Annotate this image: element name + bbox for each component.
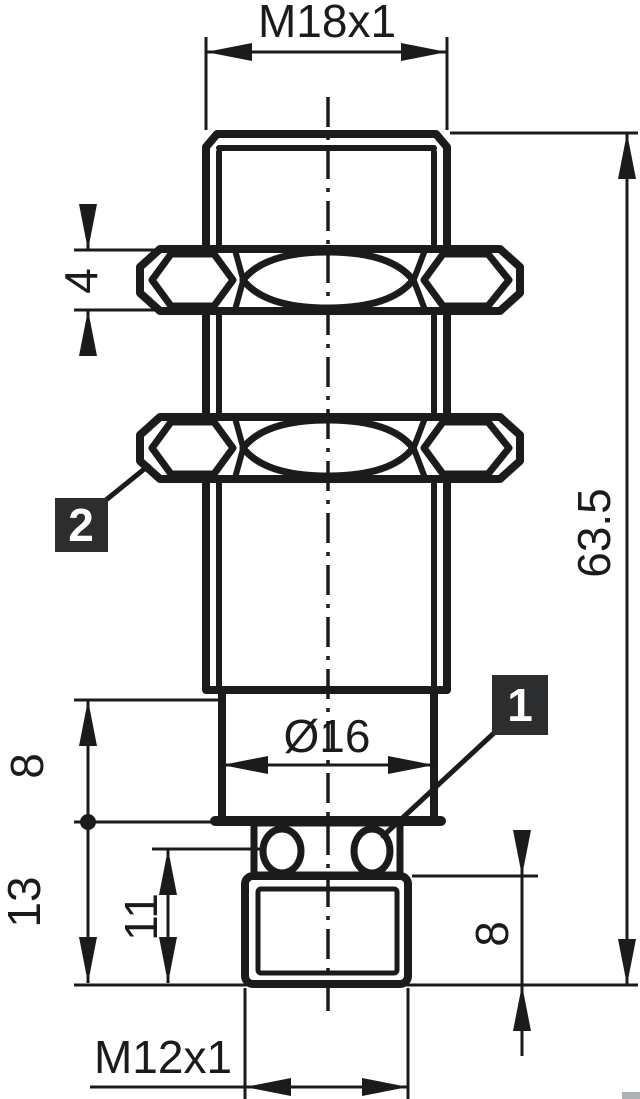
nut-right-facet (424, 254, 509, 306)
arrowhead-down (79, 204, 97, 250)
hex-nut-upper (140, 249, 520, 311)
nut-left-facet (152, 254, 233, 306)
arrowhead-right (362, 1078, 408, 1096)
arrowhead-right (401, 43, 447, 61)
dimension-label-overall: 63.5 (568, 488, 620, 578)
arrowhead-left (245, 1078, 291, 1096)
dimension-label-groove: 11 (115, 893, 167, 941)
callout-1-label: 1 (507, 679, 533, 731)
arrowhead-up (618, 133, 636, 179)
callout-2: 2 (55, 466, 148, 552)
dimension-label-m12: M12x1 (94, 1031, 232, 1083)
hex-nut-lower (140, 417, 520, 479)
arrowhead-left (206, 43, 252, 61)
dimension-label-lower: 13 (0, 876, 50, 927)
dimension-connector-length: 8 (412, 830, 538, 1056)
arrowhead-up (79, 310, 97, 356)
callout-2-label: 2 (68, 499, 94, 551)
nut-right-facet (424, 422, 509, 474)
arrowhead-down (159, 937, 177, 983)
arrowhead-up (159, 849, 177, 895)
arrowhead-down (513, 830, 531, 876)
dimension-lower-length: 13 (0, 822, 97, 983)
arrowhead-down (618, 939, 636, 985)
dimension-label-connector: 8 (466, 921, 518, 947)
dimension-connector-thread: M12x1 (90, 988, 408, 1099)
corner-artifact (622, 1092, 640, 1099)
dimension-label-diameter: Ø16 (284, 710, 371, 762)
sensor-dimension-drawing: M18x1 63.5 4 8 13 11 Ø16 (0, 0, 640, 1099)
nut-left-facet (152, 422, 233, 474)
arrowhead-up (79, 700, 97, 746)
dimension-label-nut: 4 (55, 268, 107, 294)
arrowhead-down (79, 937, 97, 983)
oring-left (263, 829, 301, 873)
dimension-groove-length: 11 (115, 849, 262, 983)
callout-2-leader (106, 466, 148, 500)
dimension-shoulder-height: 8 (1, 700, 250, 830)
dimension-label-m18: M18x1 (258, 0, 396, 47)
arrowhead-up (513, 985, 531, 1031)
dimension-label-shoulder: 8 (1, 753, 53, 779)
